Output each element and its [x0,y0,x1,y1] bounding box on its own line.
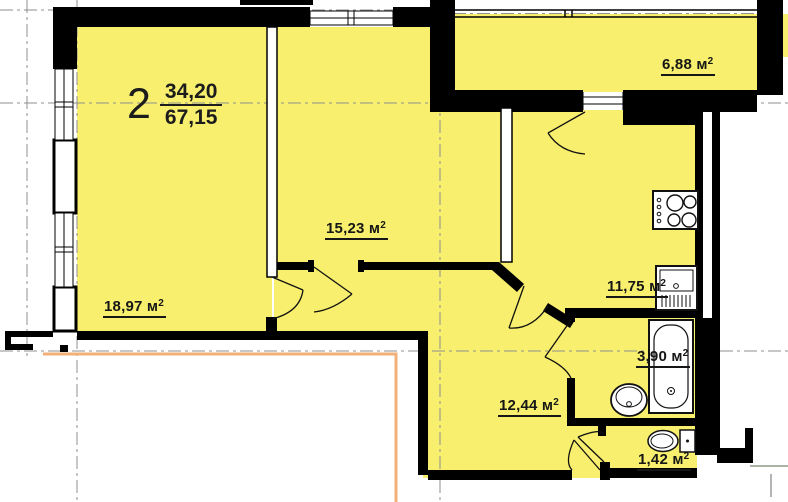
window-top [310,11,393,25]
window-left-2 [55,213,73,287]
room-label-bedroom: 15,23 м2 [325,221,388,240]
floor-plan: 2 34,20 67,15 18,97 м2 15,23 м2 11,75 м2… [0,0,788,502]
area-unit: м2 [672,451,689,468]
area-fraction: 34,20 67,15 [160,80,223,129]
room-fill-neighbor-sliver [783,14,788,57]
window-left-1 [55,69,73,140]
room-fill-loggia [453,14,759,95]
living-area-value: 34,20 [160,80,223,106]
area-unit: м2 [696,56,713,73]
room-fill-living [77,27,272,334]
room-area-value: 1,42 [638,451,668,468]
wall-pier [54,140,76,213]
room-area-value: 18,97 [104,298,143,315]
washbasin-icon [611,384,647,416]
room-area-value: 11,75 [607,278,645,295]
room-label-living-room: 18,97 м2 [103,299,166,318]
stove-icon [653,191,698,229]
room-label-loggia: 6,88 м2 [661,57,715,76]
room-area-value: 3,90 [637,348,667,365]
room-count: 2 [127,83,151,126]
lower-floor-outline [43,354,396,502]
wall-pier [54,287,76,331]
area-unit: м2 [542,397,559,414]
room-label-bathroom: 3,90 м2 [636,349,690,368]
apartment-title-block: 2 34,20 67,15 [127,80,222,129]
room-label-hallway: 12,44 м2 [498,398,561,417]
area-unit: м2 [671,348,688,365]
balcony-door-threshold [583,92,623,110]
room-label-kitchen: 11,75 м2 [606,279,668,298]
room-area-value: 15,23 [326,220,365,237]
toilet-icon [648,430,695,452]
room-area-value: 12,44 [499,397,538,414]
area-unit: м2 [369,220,386,237]
area-unit: м2 [649,278,666,295]
room-area-value: 6,88 [662,56,692,73]
area-unit: м2 [147,298,164,315]
total-area-value: 67,15 [160,106,223,130]
room-label-wc: 1,42 м2 [637,452,691,471]
